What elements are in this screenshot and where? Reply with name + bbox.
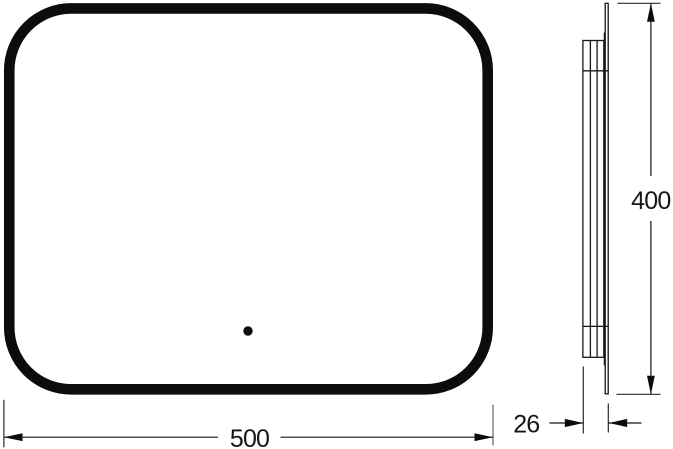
svg-text:400: 400 — [631, 187, 670, 215]
svg-text:500: 500 — [230, 425, 269, 449]
svg-text:26: 26 — [513, 410, 539, 438]
